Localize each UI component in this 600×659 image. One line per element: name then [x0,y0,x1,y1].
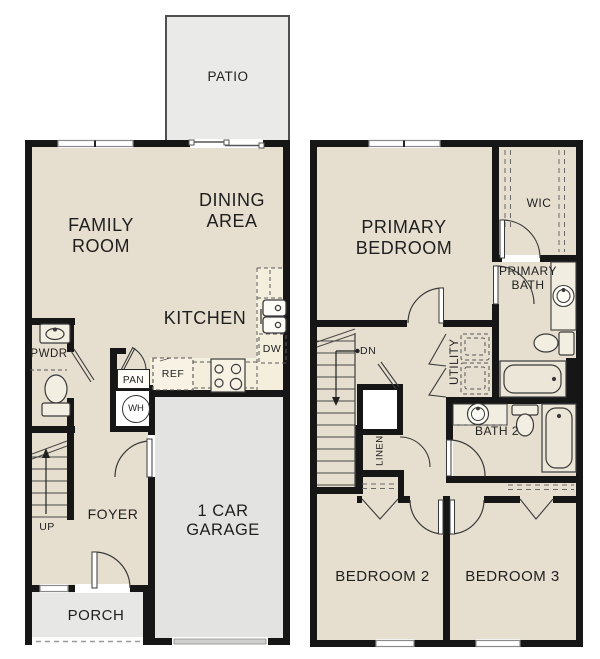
room-label-linen: LINEN [374,429,385,473]
room-label-foyer: FOYER [84,506,142,523]
room-label-powder-room: PWDR [27,348,71,362]
bath2-vanity [453,404,507,426]
room-label-kitchen: KITCHEN [150,308,260,329]
room-label-bath2: BATH 2 [473,424,521,438]
kitchen-sink [261,300,286,333]
room-label-primary-bedroom: PRIMARY BEDROOM [354,217,454,259]
bath2-tub [542,404,576,472]
powder-room-sink [40,324,70,343]
floor-plan: PATIO FAMILY ROOM DINING AREA KITCHEN PW… [0,0,600,659]
linen-door [400,437,430,467]
bedroom3-door [450,500,484,534]
room-label-dining-area: DINING AREA [187,190,277,232]
patio-sliding-door [189,140,264,148]
room-label-family-room: FAMILY ROOM [56,215,146,257]
primary-bedroom-door [408,288,444,323]
pantry-label-box: PAN [117,369,150,389]
water-heater-symbol: WH [122,395,150,423]
utility-bifold-doors [429,334,446,397]
wic-door [500,220,540,258]
label-dishwasher: DW [257,343,287,355]
primary-bath-tub [500,361,566,397]
garage-entry-door [115,439,152,477]
fixtures-layer [0,0,600,659]
label-refrigerator: REF [153,368,193,380]
label-stairs-up: UP [33,521,61,533]
room-label-garage: 1 CAR GARAGE [177,502,269,541]
powder-room-door [71,349,94,382]
powder-room-toilet [42,375,70,416]
bedroom3-closet [508,485,574,519]
garage-door [174,639,266,644]
stairs-first-floor [32,441,67,517]
bedroom2-door [410,500,444,534]
room-label-bedroom2: BEDROOM 2 [325,568,440,586]
room-label-primary-bath: PRIMARY BATH [496,264,560,292]
label-stairs-dn: DN [360,345,390,357]
room-label-wic: WIC [517,196,561,210]
room-label-utility: UTILITY [449,325,463,399]
bath2-door [447,440,486,476]
front-door [92,552,130,588]
hall-door-leaf [378,362,399,389]
bedroom2-closet [362,484,398,519]
washer-dryer [461,334,489,394]
primary-bath-toilet [534,332,574,355]
room-label-patio: PATIO [189,69,267,85]
room-label-pantry: PAN [123,375,144,386]
room-label-porch: PORCH [50,607,142,625]
stove [211,359,245,392]
label-water-heater: WH [128,403,144,414]
room-label-bedroom3: BEDROOM 3 [455,568,570,586]
